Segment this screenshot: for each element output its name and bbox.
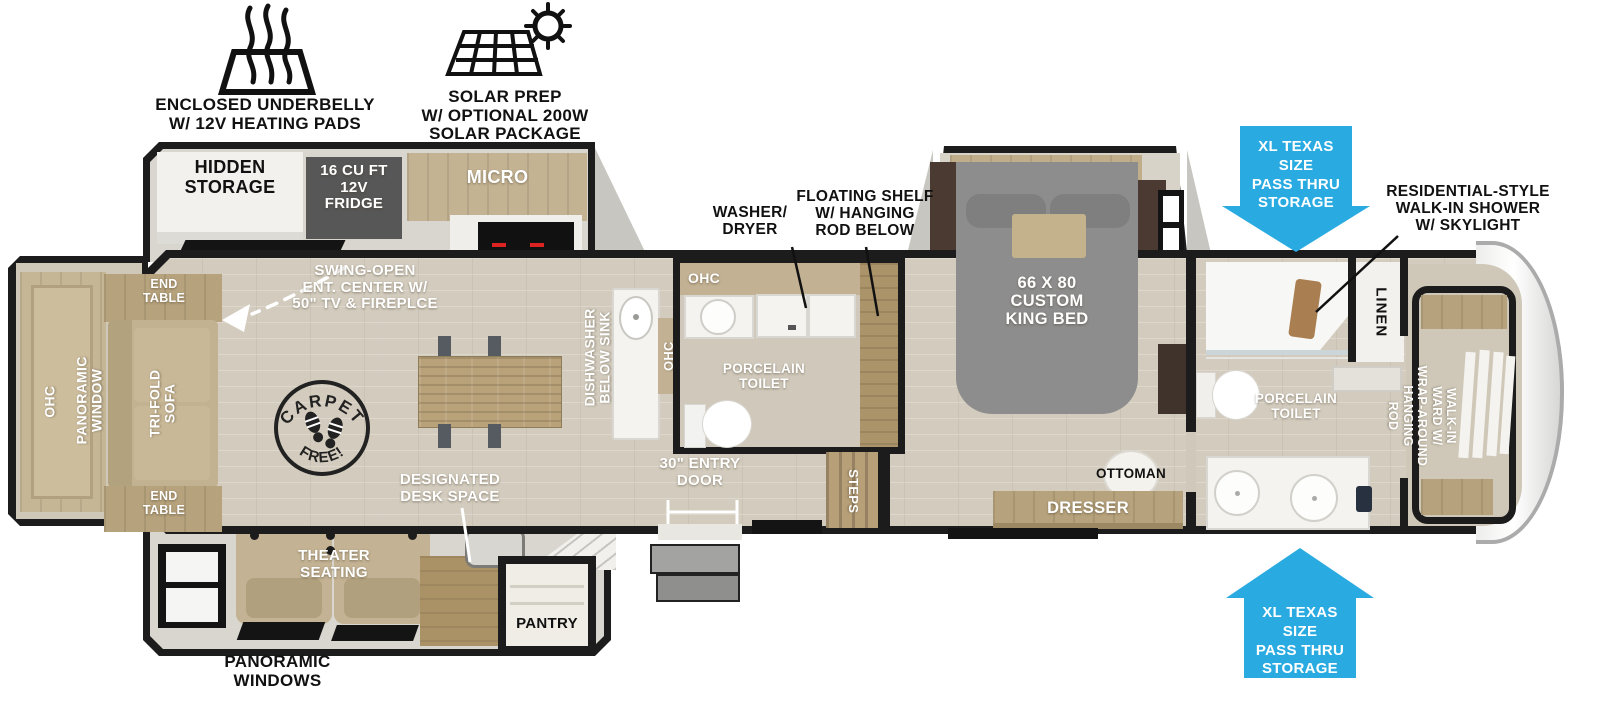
entry-door-label: 30" ENTRY DOOR — [633, 456, 767, 489]
boot-print-icon — [302, 410, 326, 445]
linen-label: LINEN — [1372, 267, 1389, 357]
vanity-sink-drain — [1235, 491, 1240, 496]
solar-panel-icon — [442, 2, 577, 90]
pantry-box — [498, 556, 596, 654]
underbelly-label: ENCLOSED UNDERBELLY W/ 12V HEATING PADS — [150, 96, 380, 133]
steps-label: STEPS — [846, 454, 860, 528]
hamper — [1356, 486, 1372, 512]
shower-glass — [1206, 350, 1356, 355]
desk — [420, 556, 500, 646]
end-table-label: END TABLE — [112, 490, 216, 518]
range-light — [492, 243, 506, 247]
mid-bath-ohc-label: OHC — [688, 271, 748, 286]
floor-window — [331, 625, 419, 641]
front-bath-toilet-label: PORCELAIN TOILET — [1240, 392, 1352, 422]
slide-wedge — [595, 148, 650, 262]
mid-bath-toilet-label: PORCELAIN TOILET — [706, 362, 822, 392]
tv-cabinet — [1158, 344, 1186, 414]
carpet-stamp-bottom-text: FREE! — [297, 443, 348, 466]
carpet-free-stamp: CARPET FREE! — [272, 378, 372, 478]
washer-dryer-callout: WASHER/ DRYER — [700, 204, 800, 238]
washer-dryer-unit — [756, 294, 808, 338]
pass-thru-top-label: XL TEXAS SIZE PASS THRU STORAGE — [1240, 138, 1352, 213]
dining-chair — [438, 424, 451, 448]
dresser-label: DRESSER — [993, 499, 1183, 517]
dishwasher-label: DISHWASHER BELOW SINK — [583, 282, 614, 432]
rear-ohc-label: OHC — [42, 372, 57, 432]
desk-space-label: DESIGNATED DESK SPACE — [375, 472, 525, 505]
floating-shelf-callout: FLOATING SHELF W/ HANGING ROD BELOW — [790, 188, 940, 239]
window-pane — [1163, 196, 1179, 222]
wardrobe-label: WALK-IN WARD W/ WRAP-AROUND HANGING ROD — [1386, 358, 1458, 474]
fridge-label: 16 CU FT 12V FRIDGE — [306, 163, 402, 213]
washer-dryer-unit — [808, 294, 856, 338]
theater-label: THEATER SEATING — [264, 548, 404, 581]
bath-doorway — [1186, 432, 1196, 492]
pantry-shelf — [510, 602, 584, 605]
king-bed-label: 66 X 80 CUSTOM KING BED — [967, 274, 1127, 328]
hidden-storage-label: HIDDEN STORAGE — [160, 158, 300, 198]
pantry-shelf — [510, 585, 584, 588]
panoramic-windows-callout: PANORAMIC WINDOWS — [195, 653, 360, 690]
bath-ward-wall — [1400, 478, 1408, 534]
dining-table — [418, 356, 562, 428]
micro-label: MICRO — [430, 168, 565, 188]
bedroom-bath-wall — [1186, 258, 1196, 534]
shower-linen-wall — [1348, 258, 1356, 362]
dining-chair — [488, 336, 501, 358]
window-pane — [166, 552, 218, 582]
bed-pillow-accent — [1012, 214, 1086, 258]
range-light — [530, 243, 544, 247]
vanity-sink-drain — [1312, 496, 1317, 501]
floor-window — [948, 528, 1098, 539]
floorplan-diagram: ENCLOSED UNDERBELLY W/ 12V HEATING PADS … — [0, 0, 1600, 701]
steps-divider-wall — [878, 450, 890, 534]
theater-seat-cushion — [344, 578, 420, 618]
exterior-step — [650, 544, 740, 574]
washer-dot — [788, 325, 796, 330]
end-table-label: END TABLE — [112, 278, 216, 306]
pass-thru-arrow-up-head — [1226, 548, 1374, 598]
dining-chair — [488, 424, 501, 448]
toilet-bowl — [702, 400, 752, 448]
bath-ward-wall — [1400, 258, 1408, 336]
wardrobe-shelf — [1421, 479, 1493, 515]
floor-window — [237, 622, 326, 640]
panoramic-window-label: PANORAMIC WINDOW — [75, 325, 106, 475]
sofa-back — [108, 320, 132, 488]
pass-thru-bottom-label: XL TEXAS SIZE PASS THRU STORAGE — [1244, 604, 1356, 679]
wardrobe-shelf — [1421, 295, 1507, 329]
kitchen-faucet — [633, 314, 639, 320]
window-pane — [166, 588, 218, 622]
theater-seat-cushion — [246, 578, 322, 618]
slide-wedge — [1187, 150, 1213, 262]
shower-glass — [1206, 357, 1356, 359]
tri-fold-sofa-label: TRI-FOLD SOFA — [148, 328, 179, 478]
floor-window — [752, 520, 822, 534]
heating-pads-icon — [212, 2, 322, 97]
boot-print-icon — [322, 416, 345, 451]
exterior-step — [656, 574, 740, 602]
shower-callout: RESIDENTIAL-STYLE WALK-IN SHOWER W/ SKYL… — [1368, 183, 1568, 234]
floating-shelf — [860, 263, 898, 447]
svg-text:FREE!: FREE! — [297, 443, 348, 466]
pantry-label: PANTRY — [500, 616, 594, 633]
solar-prep-label: SOLAR PREP W/ OPTIONAL 200W SOLAR PACKAG… — [420, 88, 590, 144]
entry-door-opening — [658, 524, 742, 540]
dining-chair — [438, 336, 451, 358]
bath-sink — [700, 299, 736, 335]
swing-open-label: SWING-OPEN ENT. CENTER W/ 50" TV & FIREP… — [285, 263, 445, 313]
ottoman-label: OTTOMAN — [1083, 467, 1179, 482]
